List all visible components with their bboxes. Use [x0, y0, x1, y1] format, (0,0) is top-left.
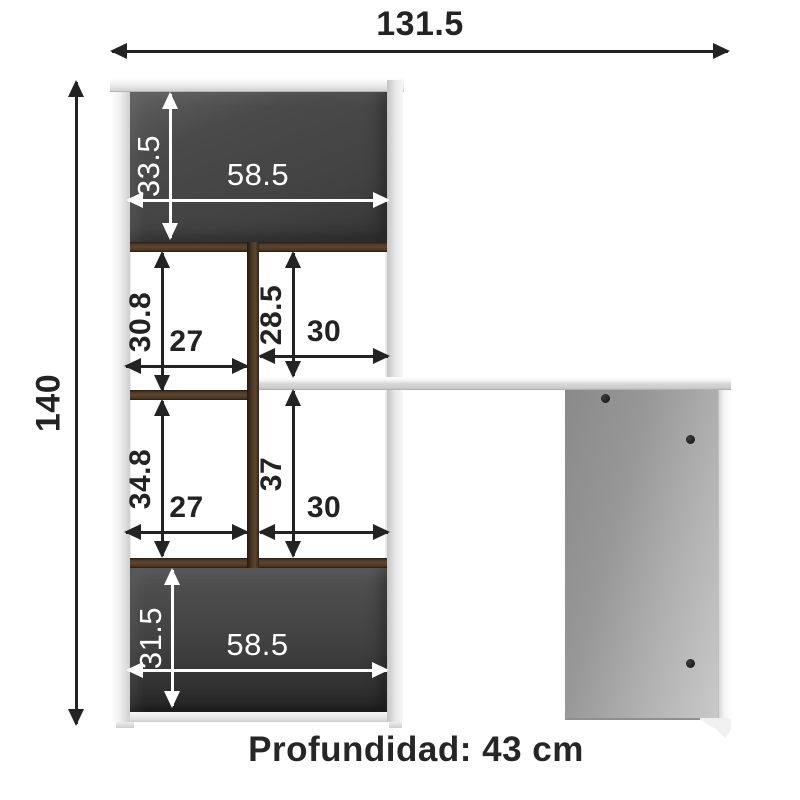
- dim-label: 27: [169, 491, 203, 525]
- dim-label: 31.5: [133, 607, 169, 669]
- dim-line: [171, 570, 174, 706]
- screw-hole: [686, 435, 695, 444]
- desk-front-edge: [718, 377, 732, 730]
- dim-line: [128, 199, 388, 202]
- dim-line: [161, 253, 164, 390]
- screw-hole: [686, 659, 695, 668]
- dim-line: [260, 355, 388, 358]
- dim-line: [126, 531, 247, 534]
- screw-hole: [601, 394, 610, 403]
- shelf-left-panel: [112, 80, 130, 722]
- shelf-left-foot: [116, 722, 134, 728]
- furniture-dimension-diagram: 131.5 140 33.5 58.5 30.8 27 28.5 30: [0, 0, 800, 800]
- shelf-right-foot: [389, 722, 402, 728]
- dim-line: [126, 365, 247, 368]
- dim-line: [292, 253, 295, 376]
- dim-label: 30.8: [124, 291, 158, 351]
- dim-label: 34.8: [124, 448, 158, 508]
- desk-worktop: [252, 377, 731, 390]
- dim-line: [260, 531, 388, 534]
- dim-line: [128, 669, 387, 672]
- shelf-top-board: [110, 78, 404, 92]
- dim-line: [169, 94, 172, 238]
- dim-label: 58.5: [227, 157, 289, 193]
- dim-line: [112, 50, 728, 53]
- dim-label: 30: [307, 491, 341, 525]
- dim-label: 58.5: [226, 627, 288, 663]
- desk-side-panel: [565, 390, 718, 720]
- dim-label: 30: [307, 315, 341, 349]
- dim-line: [75, 82, 78, 724]
- dim-label: 33.5: [131, 135, 167, 197]
- dim-label: 27: [169, 325, 203, 359]
- dim-label: 37: [255, 456, 289, 490]
- wood-shelf-middle: [121, 390, 259, 400]
- shelf-bottom-board: [117, 712, 398, 722]
- dim-label-overall-height: 140: [30, 374, 69, 432]
- depth-label: Profundidad: 43 cm: [116, 730, 716, 770]
- shelf-right-panel: [387, 80, 403, 722]
- dim-label-overall-width: 131.5: [376, 5, 464, 44]
- dim-label: 28.5: [255, 284, 289, 344]
